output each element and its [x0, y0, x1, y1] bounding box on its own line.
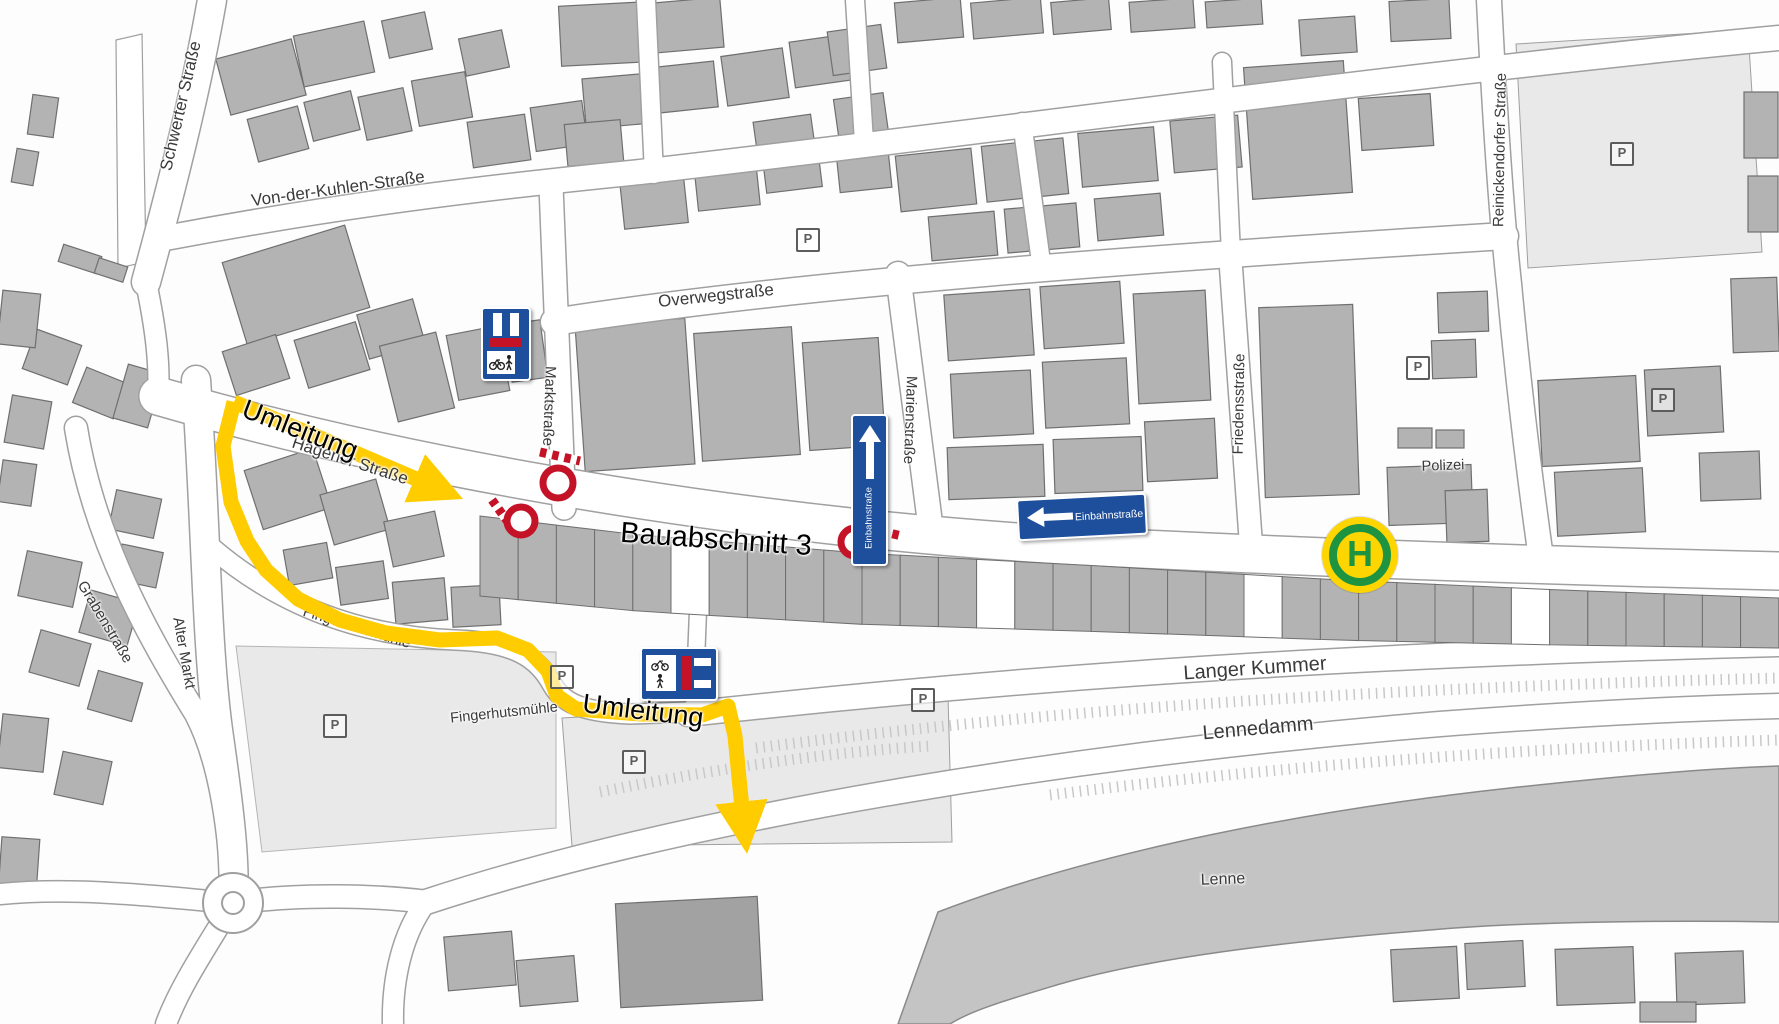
building-parcel — [1397, 583, 1435, 643]
parking-icon: P — [323, 714, 347, 738]
parking-icon: P — [911, 688, 935, 712]
building — [379, 332, 454, 422]
building-parcel — [1741, 597, 1779, 648]
building-parcel — [938, 557, 976, 628]
building — [1051, 0, 1112, 34]
building — [54, 751, 112, 804]
building — [467, 114, 531, 168]
lenne-river — [898, 766, 1779, 1024]
base-map: Fingerhutsmühle — [0, 0, 1779, 1024]
building — [294, 322, 370, 389]
building — [4, 395, 52, 449]
building — [1431, 339, 1476, 379]
river-label-lenne: Lenne — [1200, 870, 1245, 890]
building-parcel — [1550, 590, 1588, 646]
building — [1129, 0, 1195, 32]
building — [336, 561, 389, 605]
building-parcel — [1282, 577, 1320, 640]
building — [87, 670, 142, 721]
detour-map: Fingerhutsmühle — [0, 0, 1779, 1024]
dead-end-sign-fingerhutsmuehle — [640, 647, 718, 701]
building — [1436, 430, 1464, 448]
parking-icon: P — [550, 665, 574, 689]
building — [1554, 468, 1645, 537]
street — [0, 891, 233, 903]
closed-bar-icon — [489, 338, 522, 347]
bike-pedestrian-box — [646, 655, 676, 691]
building — [1437, 291, 1488, 333]
building — [928, 211, 998, 261]
building — [1133, 290, 1211, 404]
bicycle-pedestrian-icon — [488, 353, 514, 372]
bus-stop-marker: H — [1322, 517, 1398, 593]
building — [721, 48, 789, 106]
building — [1042, 358, 1129, 428]
street-label-marktstrasse: Marktstraße — [539, 366, 559, 447]
dead-end-stub-right — [510, 313, 519, 336]
building — [971, 0, 1044, 39]
street — [855, 0, 864, 142]
building — [1094, 193, 1163, 241]
building — [1205, 0, 1263, 28]
one-way-label: Einbahnstraße — [1075, 508, 1144, 524]
building — [1699, 451, 1761, 501]
building — [1078, 127, 1158, 187]
left-arrow-icon — [1026, 507, 1044, 528]
poi-label-polizei: Polizei — [1421, 457, 1464, 474]
bus-stop-h-label: H — [1322, 517, 1398, 593]
building — [1675, 951, 1745, 1005]
building-parcel — [1664, 594, 1702, 647]
building — [1748, 176, 1778, 232]
building — [444, 931, 516, 991]
closed-bar-icon — [682, 656, 691, 690]
building — [1445, 489, 1489, 542]
building — [615, 896, 762, 1007]
building — [247, 106, 309, 162]
building — [1144, 418, 1217, 482]
building — [1391, 946, 1460, 1001]
bicycle-pedestrian-icon — [648, 657, 674, 689]
street-label-reinickendorfer-strasse: Reinickendorfer Straße — [1490, 73, 1510, 228]
building — [950, 370, 1033, 438]
building — [27, 94, 58, 137]
parking-icon: P — [622, 750, 646, 774]
parking-icon: P — [1651, 388, 1675, 412]
street — [646, 0, 654, 174]
parking-icon: P — [1406, 356, 1430, 380]
building — [564, 120, 623, 167]
building — [411, 72, 472, 127]
up-arrow-icon — [859, 425, 881, 442]
building-parcel — [1053, 563, 1091, 631]
dead-end-sign-marktstrasse — [481, 307, 531, 381]
building — [1744, 92, 1778, 158]
building — [656, 61, 718, 113]
building — [895, 148, 976, 212]
building — [216, 39, 306, 115]
parking-icon: P — [796, 228, 820, 252]
building-parcel — [1511, 588, 1549, 645]
building — [0, 290, 41, 348]
building — [459, 30, 510, 76]
building — [293, 21, 374, 87]
building — [1389, 0, 1451, 42]
building-parcel — [977, 559, 1015, 629]
street — [1222, 62, 1231, 254]
building-parcel — [1435, 584, 1473, 643]
street-label-marienstrasse: Marienstraße — [900, 376, 920, 465]
building — [382, 12, 433, 58]
building — [894, 0, 963, 43]
dead-end-stub-bottom — [694, 680, 711, 688]
building — [558, 2, 649, 67]
building — [1259, 304, 1360, 497]
closure-sign-1 — [543, 468, 573, 498]
building — [1538, 375, 1640, 466]
building-parcel — [1168, 570, 1206, 635]
building-parcel — [1206, 572, 1244, 637]
roundabout — [203, 873, 263, 933]
building — [694, 327, 801, 462]
parking-icon: P — [1610, 142, 1634, 166]
building — [654, 0, 724, 53]
closure-sign-2 — [507, 507, 535, 535]
alter-markt-plaza — [236, 646, 556, 852]
building — [384, 511, 444, 567]
building — [392, 578, 447, 624]
building — [11, 148, 39, 185]
left-arrow-shaft — [1043, 512, 1073, 521]
building — [1040, 281, 1124, 348]
building — [18, 551, 82, 608]
building — [516, 956, 578, 1007]
one-way-label: Einbahnstraße — [864, 487, 875, 549]
building-parcel — [556, 525, 594, 607]
building — [0, 460, 37, 506]
building — [1640, 1002, 1696, 1022]
building-parcel — [1588, 591, 1626, 646]
up-arrow-shaft — [866, 441, 874, 479]
building-parcel — [900, 555, 938, 626]
building — [222, 334, 289, 395]
building-parcel — [1091, 566, 1129, 633]
building — [1465, 941, 1525, 990]
one-way-sign-marienstrasse: Einbahnstraße — [851, 414, 888, 566]
building — [320, 479, 390, 545]
dead-end-stub-left — [493, 313, 502, 336]
building — [944, 289, 1034, 361]
building-parcel — [1702, 595, 1740, 647]
building — [0, 714, 49, 773]
building-parcel — [1626, 592, 1664, 646]
building — [1358, 94, 1433, 151]
building — [947, 444, 1045, 499]
building-parcel — [1015, 561, 1053, 630]
building — [29, 630, 91, 687]
building — [1731, 277, 1779, 353]
building — [1555, 947, 1635, 1006]
building-parcel — [1473, 586, 1511, 644]
building-parcel — [1244, 574, 1282, 638]
building — [283, 542, 333, 585]
building — [1299, 16, 1357, 56]
street-label-friedensstrasse: Friedensstraße — [1230, 353, 1249, 454]
building — [304, 91, 360, 141]
bike-pedestrian-box — [487, 351, 515, 374]
building — [1053, 436, 1143, 493]
one-way-sign-main-street: Einbahnstraße — [1016, 493, 1148, 542]
dead-end-stub-top — [694, 658, 711, 666]
building-parcel — [1129, 568, 1167, 634]
building — [358, 88, 412, 141]
building — [1398, 428, 1432, 448]
schwerter-parking-strip — [116, 34, 146, 268]
building — [575, 318, 695, 471]
